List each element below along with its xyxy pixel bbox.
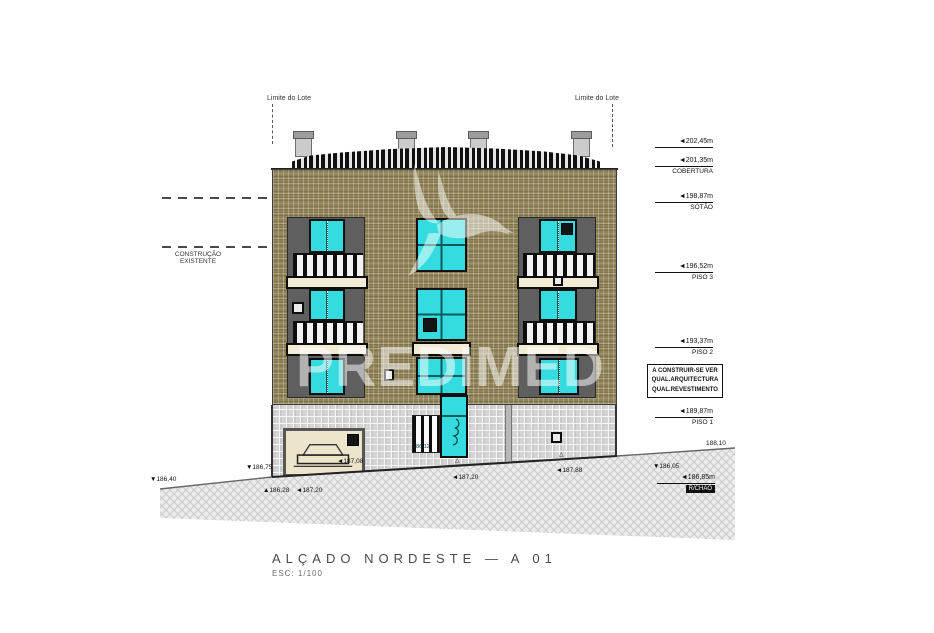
level-name: R/CHÃO xyxy=(686,485,715,493)
spot-elevation: ▲186,28 xyxy=(263,487,289,494)
level-value: ◄189,87m xyxy=(655,408,713,416)
benchmark-triangle: △ xyxy=(559,451,564,458)
detail-marker-box xyxy=(423,318,437,332)
level-value: ◄193,37m xyxy=(655,338,713,346)
spot-elevation: ◄187,08 xyxy=(337,458,363,465)
lot-limit-right-line xyxy=(612,104,613,147)
level-marker-piso-3: ◄196,52m PISO 3 xyxy=(655,263,713,281)
level-name: PISO 2 xyxy=(655,349,713,356)
level-name: SÓTÃO xyxy=(655,204,713,211)
window xyxy=(539,289,577,321)
level-value: ◄198,87m xyxy=(655,193,713,201)
level-line xyxy=(655,202,713,203)
spot-elevation: ◄187,20 xyxy=(296,487,322,494)
level-name: COBERTURA xyxy=(655,168,713,175)
window xyxy=(309,289,345,321)
level-name: PISO 3 xyxy=(655,274,713,281)
elevation-drawing-canvas: Limite do Lote Limite do Lote CONSTRUÇÃO… xyxy=(0,0,934,633)
balcony-railing xyxy=(293,321,363,343)
lot-limit-right-label: Limite do Lote xyxy=(575,95,619,102)
stairwell-window xyxy=(416,288,467,341)
level-value: ◄202,45m xyxy=(655,138,713,146)
level-line xyxy=(655,147,713,148)
existing-construction-line-upper xyxy=(162,197,272,199)
stairwell-spandrel xyxy=(412,342,471,356)
balcony-railing xyxy=(523,253,595,276)
balcony-slab xyxy=(517,343,599,356)
balcony-slab xyxy=(286,276,368,289)
benchmark-triangle: △ xyxy=(455,457,460,464)
balcony-slab xyxy=(286,343,368,356)
level-line xyxy=(657,483,715,484)
detail-marker-box xyxy=(553,276,563,286)
level-line xyxy=(655,272,713,273)
stairwell-window xyxy=(416,218,467,272)
chimney xyxy=(573,137,590,157)
level-marker-res-do-chao: ◄186,85m R/CHÃO xyxy=(657,474,715,493)
lot-limit-left-line xyxy=(272,104,273,144)
existing-construction-line-lower xyxy=(162,246,272,248)
construction-note-box: A CONSTRUIR-SE VER QUAL.ARQUITECTURA QUA… xyxy=(647,364,723,398)
balcony-railing xyxy=(293,253,363,276)
level-marker-piso-2: ◄193,37m PISO 2 xyxy=(655,338,713,356)
window xyxy=(539,358,579,395)
level-marker-piso-1: ◄189,87m PISO 1 xyxy=(655,408,713,426)
level-marker-sotao: ◄198,87m SÓTÃO xyxy=(655,193,713,211)
detail-marker-box xyxy=(292,302,304,314)
level-value: ◄196,52m xyxy=(655,263,713,271)
level-line xyxy=(655,347,713,348)
spot-elevation: ◄187,88 xyxy=(556,467,582,474)
level-marker-cobertura: ◄201,35m COBERTURA xyxy=(655,157,713,175)
right-bay-panel xyxy=(518,217,596,398)
left-bay-panel xyxy=(287,217,365,398)
detail-marker-box xyxy=(561,223,573,235)
balcony-railing xyxy=(523,321,595,343)
level-marker: ◄202,45m xyxy=(655,138,713,149)
spot-elevation: 186,12 xyxy=(413,444,430,450)
spot-elevation: ▼186,05 xyxy=(653,463,679,470)
lot-limit-left-label: Limite do Lote xyxy=(267,95,311,102)
existing-construction-label: CONSTRUÇÃO EXISTENTE xyxy=(150,251,246,265)
level-line xyxy=(655,166,713,167)
window xyxy=(309,219,345,253)
chimney xyxy=(295,137,312,157)
detail-marker-box xyxy=(384,369,394,381)
spot-elevation: ◄187,20 xyxy=(452,474,478,481)
level-name: PISO 1 xyxy=(655,419,713,426)
window xyxy=(309,358,345,395)
drawing-scale: ESC: 1/100 xyxy=(272,569,323,578)
level-line xyxy=(655,417,713,418)
stairwell-window xyxy=(416,357,467,395)
level-value: ◄201,35m xyxy=(655,157,713,165)
level-value: ◄186,85m xyxy=(657,474,715,482)
drawing-title: ALÇADO NORDESTE — A 01 xyxy=(272,551,557,566)
